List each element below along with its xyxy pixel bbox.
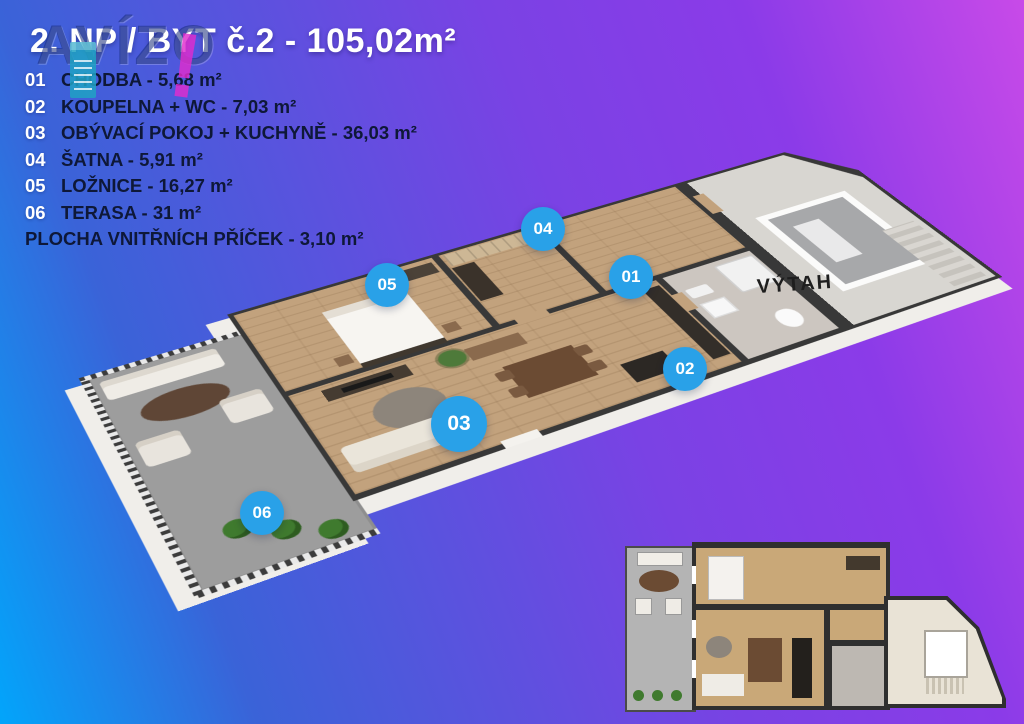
mini-kitchen-island <box>792 638 812 698</box>
mini-terrace-plant <box>671 690 682 701</box>
mini-hallway <box>830 610 886 640</box>
legend-footer: PLOCHA VNITŘNÍCH PŘÍČEK - 3,10 m² <box>25 226 417 253</box>
mini-door-opening <box>692 566 696 584</box>
mini-door-opening <box>692 660 696 678</box>
floorplan-advert-image: 2. NP / BYT č.2 - 105,02m² 01CHODBA - 5,… <box>0 0 1024 724</box>
room-marker-01: 01 <box>609 255 653 299</box>
floorplan-2d-mini <box>618 538 1014 724</box>
legend-item: 03OBÝVACÍ POKOJ + KUCHYNĚ - 36,03 m² <box>25 120 417 147</box>
mini-stairwell-floor <box>888 600 1002 704</box>
mini-terrace-sofa <box>637 552 683 566</box>
mini-stairs <box>926 678 964 694</box>
legend-item-number: 03 <box>25 120 61 147</box>
legend-item-label: ŠATNA - 5,91 m² <box>61 149 203 170</box>
mini-terrace-armchair <box>665 598 682 615</box>
mini-apartment <box>692 542 890 710</box>
nightstand <box>441 321 462 333</box>
legend-item: 06TERASA - 31 m² <box>25 200 417 227</box>
mini-terrace-plant <box>652 690 663 701</box>
nightstand <box>333 354 354 367</box>
mini-stairwell <box>884 596 1006 708</box>
room-marker-03: 03 <box>431 396 487 452</box>
room-marker-05: 05 <box>365 263 409 307</box>
mini-bed <box>708 556 744 600</box>
terrace-armchair <box>134 429 193 468</box>
mini-terrace <box>625 546 696 712</box>
toilet <box>770 306 810 329</box>
mini-dining-table <box>748 638 782 682</box>
legend-item: 05LOŽNICE - 16,27 m² <box>25 173 417 200</box>
elevator-car <box>793 219 863 263</box>
legend-item-label: OBÝVACÍ POKOJ + KUCHYNĚ - 36,03 m² <box>61 122 417 143</box>
mini-bedroom <box>696 548 886 604</box>
legend-item-number: 05 <box>25 173 61 200</box>
mini-elevator <box>924 630 968 678</box>
legend-item-number: 06 <box>25 200 61 227</box>
legend-item-number: 02 <box>25 94 61 121</box>
legend-item-number: 04 <box>25 147 61 174</box>
mini-door-opening <box>692 620 696 638</box>
avizo-watermark-badge-icon <box>70 42 96 98</box>
mini-desk <box>846 556 880 570</box>
mini-living-room <box>696 610 824 706</box>
mini-rug <box>706 636 732 658</box>
mini-terrace-table <box>639 570 679 592</box>
mini-bathroom <box>832 646 886 706</box>
legend-item-label: LOŽNICE - 16,27 m² <box>61 175 233 196</box>
mini-terrace-plant <box>633 690 644 701</box>
mini-terrace-armchair <box>635 598 652 615</box>
legend-item: 04ŠATNA - 5,91 m² <box>25 147 417 174</box>
room-marker-04: 04 <box>521 207 565 251</box>
legend-item-label: TERASA - 31 m² <box>61 202 201 223</box>
sink <box>685 284 715 299</box>
room-marker-06: 06 <box>240 491 284 535</box>
washing-machine <box>699 296 739 318</box>
room-marker-02: 02 <box>663 347 707 391</box>
console-table <box>464 332 528 360</box>
mini-sofa <box>702 674 744 696</box>
